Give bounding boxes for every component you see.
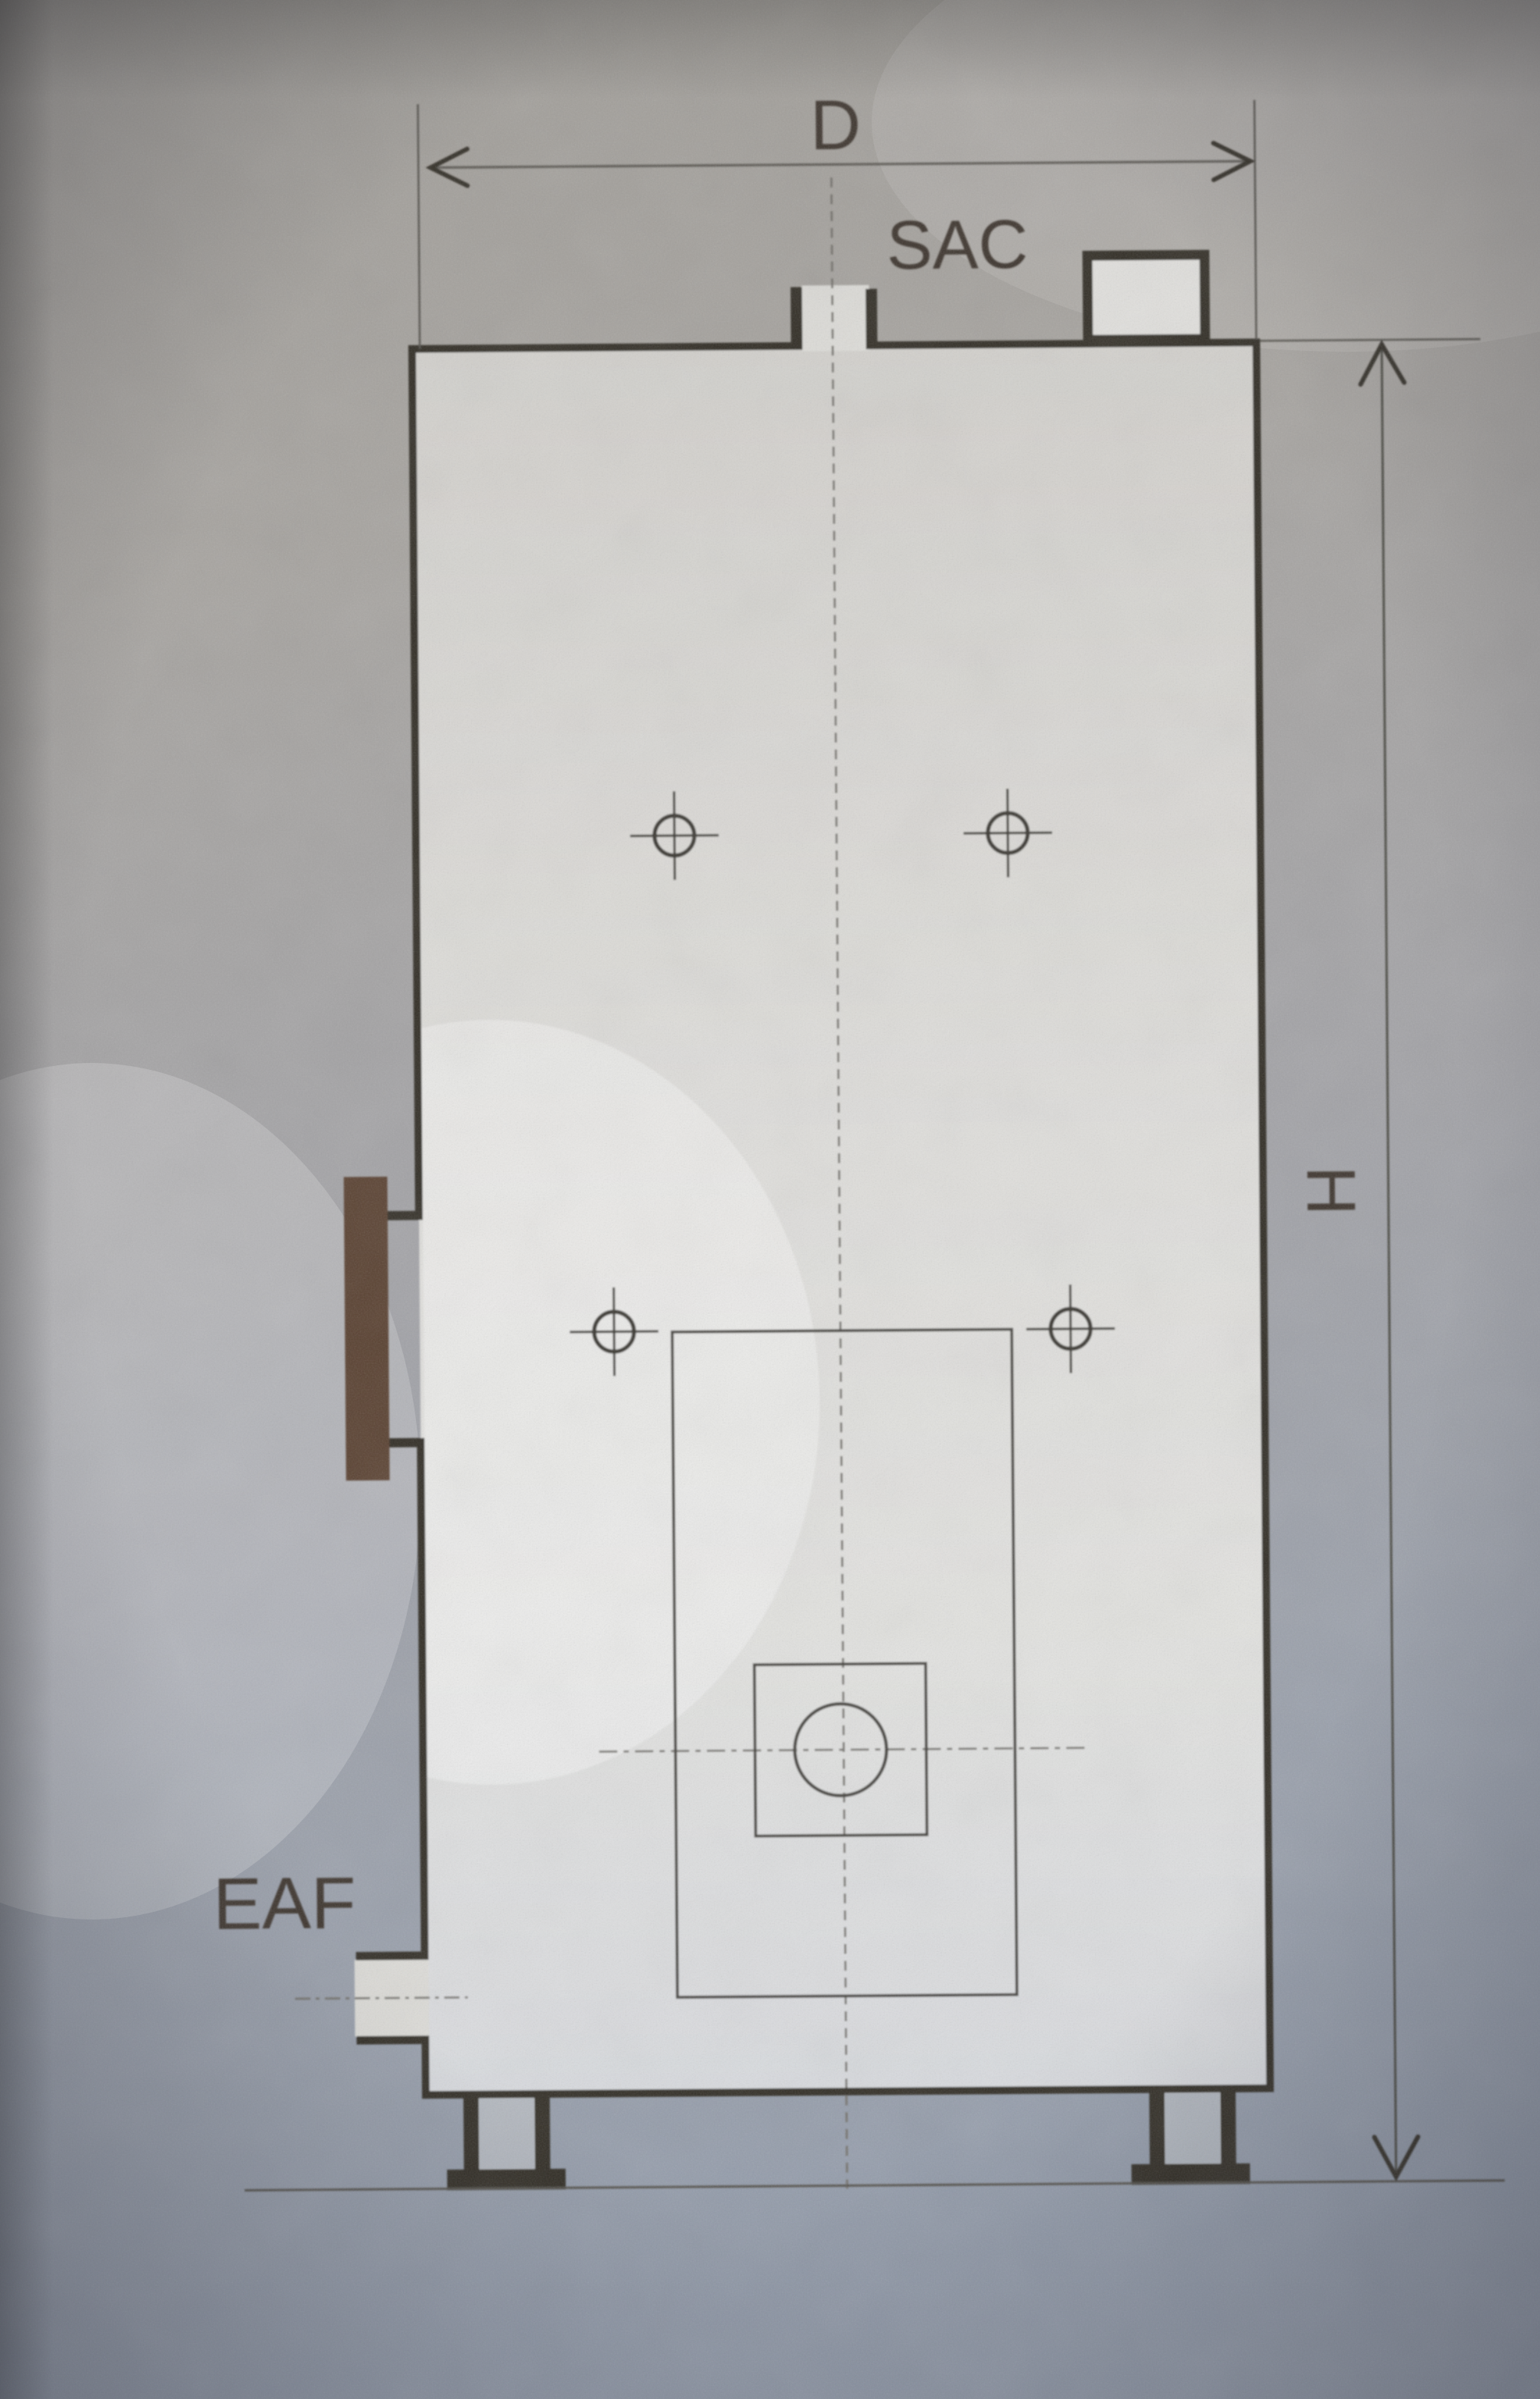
photo-of-technical-drawing: D H SAC EAF <box>0 0 1540 2399</box>
vignette-overlay <box>0 0 1540 2399</box>
